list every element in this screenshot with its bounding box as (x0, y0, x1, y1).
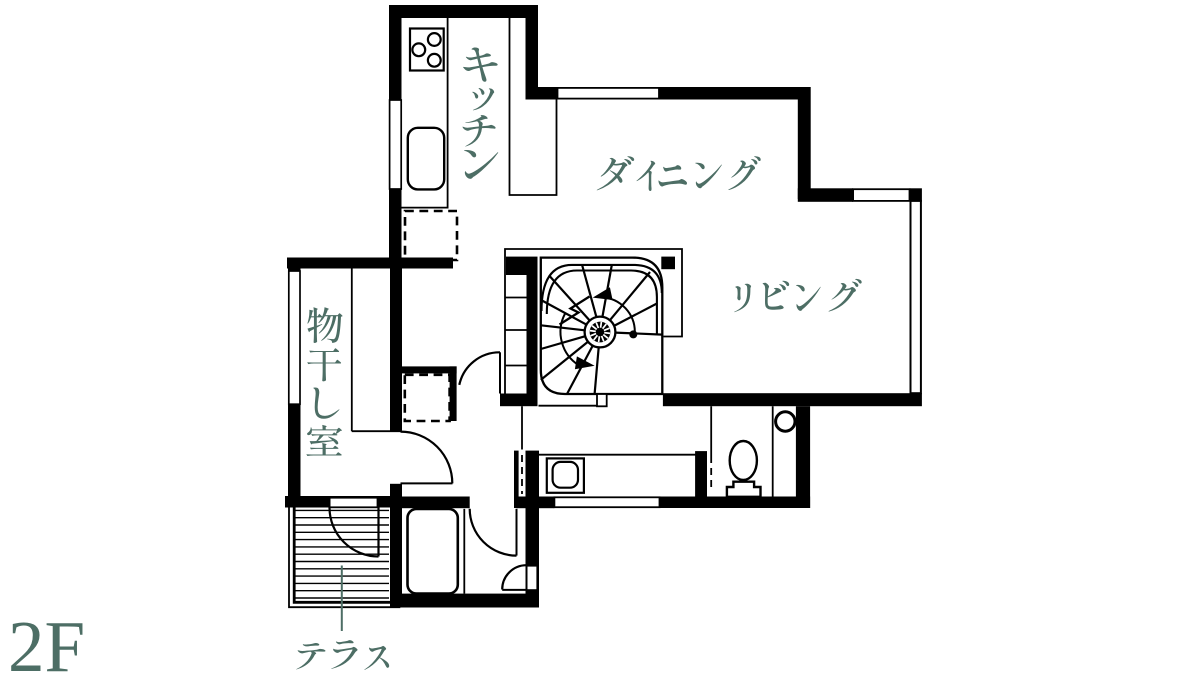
svg-text:2F: 2F (8, 606, 85, 678)
